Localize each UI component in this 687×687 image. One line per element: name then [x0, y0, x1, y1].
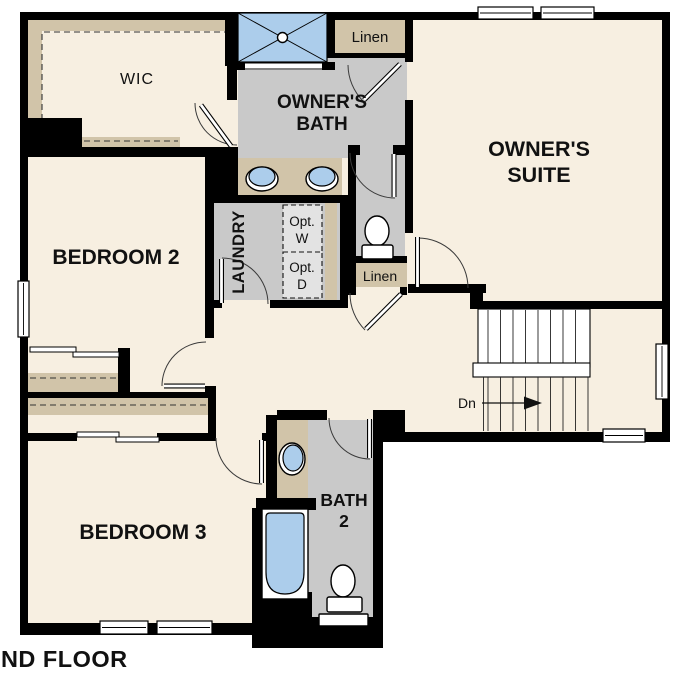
- linen-upper-label: Linen: [352, 29, 389, 46]
- right-wall-window: [656, 344, 668, 399]
- owners-bath-label-line1: OWNER'S: [277, 92, 367, 113]
- bedroom2-closet-shelf: [28, 373, 120, 392]
- vanity-sink-right: [306, 167, 338, 191]
- floor-plan: WIC OWNER'S BATH Linen OWNER'S SUITE BED…: [0, 0, 687, 687]
- owners-suite-label-line1: OWNER'S: [488, 137, 590, 161]
- opt-washer-label-line1: Opt.: [289, 214, 315, 229]
- wic-shelf-left: [28, 20, 42, 120]
- bath2-sink: [279, 443, 305, 475]
- vanity-sink-left: [246, 167, 278, 191]
- opt-washer-label-line2: W: [296, 231, 309, 246]
- bedroom3-window-right: [157, 621, 212, 634]
- opt-dryer-label-line2: D: [297, 277, 307, 292]
- shower: [238, 13, 327, 62]
- page-title: SECOND FLOOR: [0, 646, 128, 672]
- bath2-label-line1: BATH: [320, 490, 367, 510]
- laundry-counter-strip: [325, 203, 337, 300]
- bedroom2-window: [18, 281, 29, 337]
- bedroom2-label: BEDROOM 2: [52, 246, 179, 269]
- bathtub: [262, 509, 308, 599]
- wic-shelf-top: [28, 20, 230, 31]
- bedroom3-label: BEDROOM 3: [79, 521, 206, 544]
- owners-suite-label-line2: SUITE: [507, 163, 570, 187]
- stair-down-label: Dn: [458, 395, 476, 411]
- hall-window: [603, 429, 645, 442]
- shower-threshold: [245, 62, 322, 70]
- owners-suite-window-left: [478, 7, 533, 19]
- bedroom3-closet-shelf: [28, 398, 208, 415]
- bath2-label-line2: 2: [339, 511, 349, 531]
- wic-label: WIC: [120, 71, 154, 88]
- bedroom3-window-left: [100, 621, 148, 634]
- opt-dryer-label-line1: Opt.: [289, 260, 315, 275]
- stair-upper-flight: [478, 309, 590, 367]
- stair-mid-rail: [473, 363, 590, 377]
- owners-suite-window-right: [541, 7, 594, 19]
- linen-lower-label: Linen: [363, 268, 397, 284]
- laundry-label: LAUNDRY: [230, 210, 248, 294]
- owners-bath-label-line2: BATH: [296, 114, 347, 135]
